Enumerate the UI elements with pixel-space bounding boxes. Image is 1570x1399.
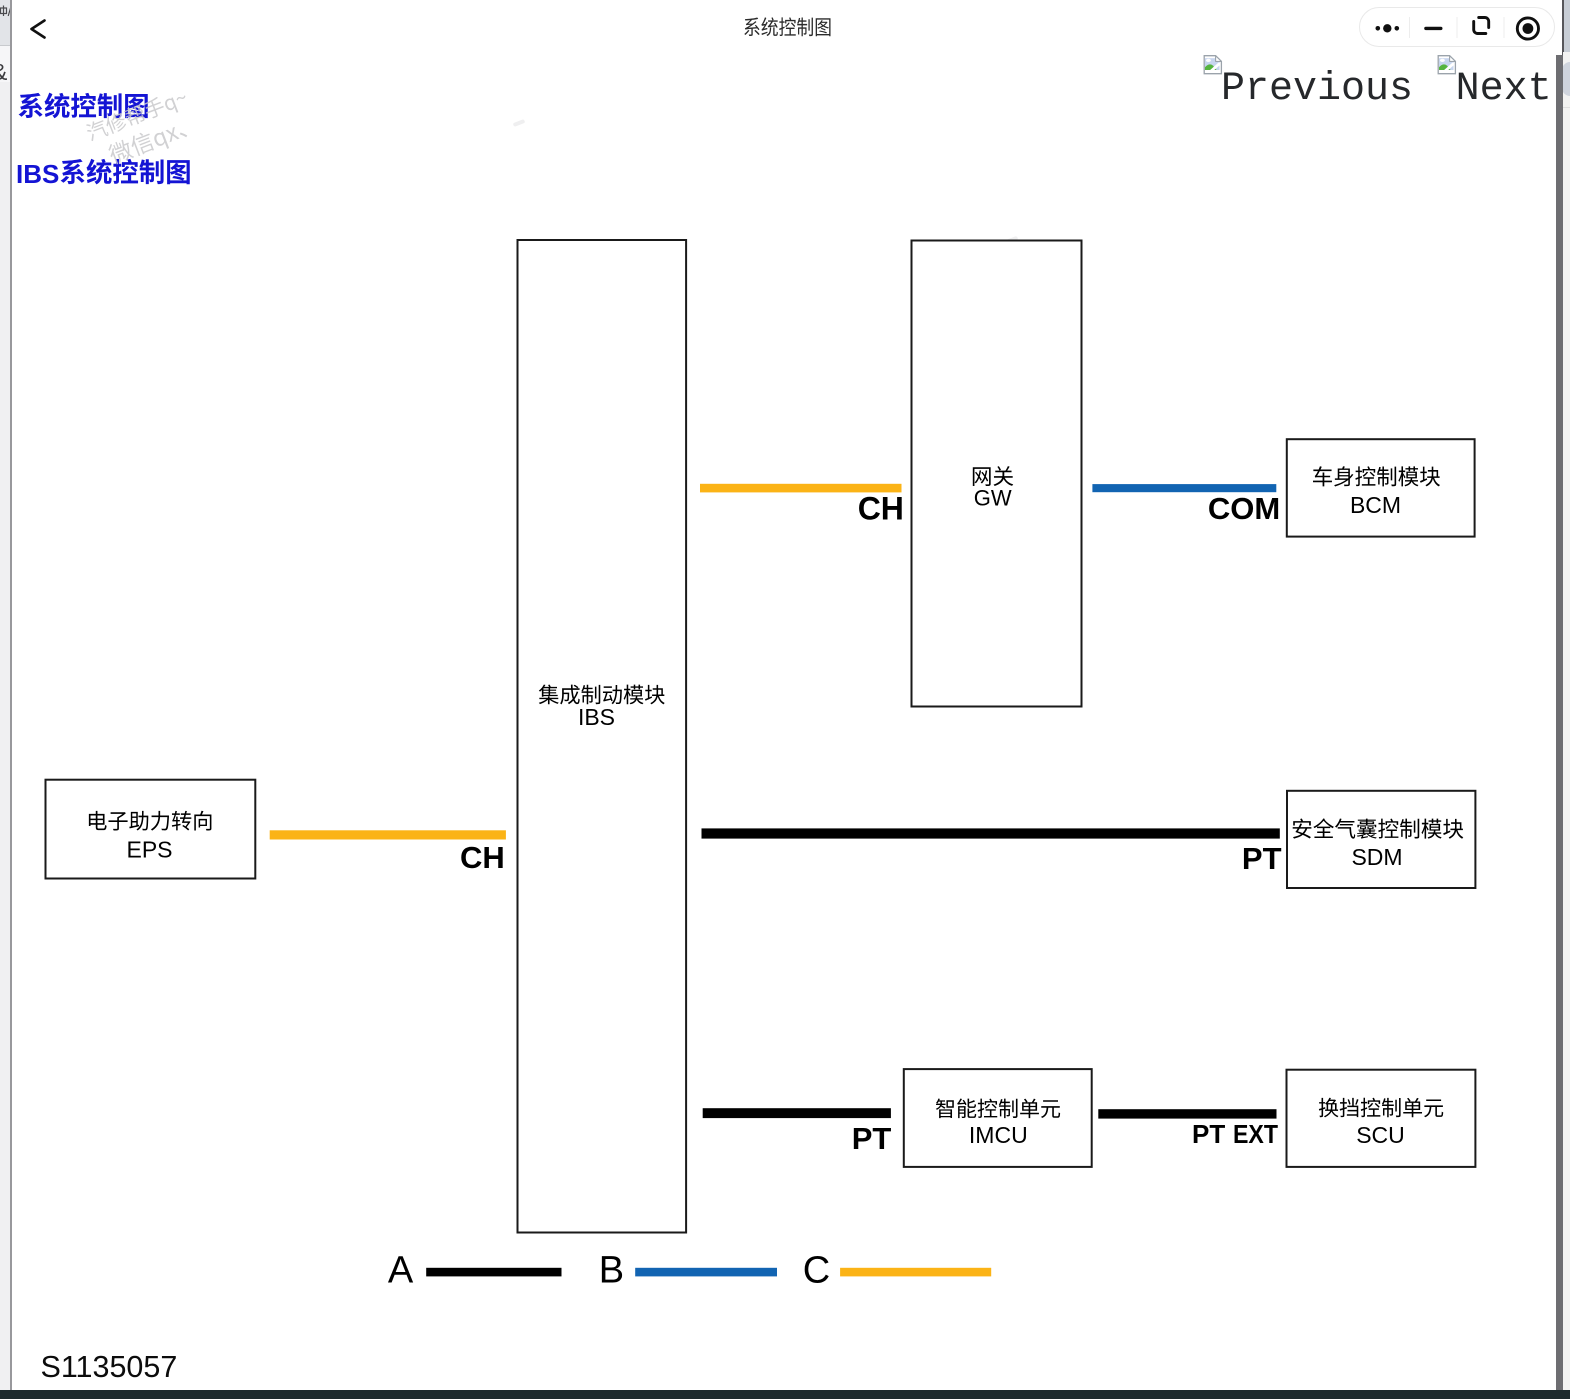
svg-text:BCM: BCM [1350, 492, 1401, 518]
svg-text:PT: PT [1242, 841, 1282, 876]
svg-text:IBS: IBS [578, 704, 615, 730]
svg-text:COM: COM [1208, 491, 1280, 526]
svg-text:SDM: SDM [1351, 844, 1402, 870]
svg-text:A: A [388, 1249, 414, 1291]
svg-text:CH: CH [858, 491, 904, 527]
svg-text:S1135057: S1135057 [41, 1350, 178, 1384]
svg-text:CH: CH [460, 840, 505, 875]
svg-text:SCU: SCU [1356, 1122, 1405, 1148]
svg-text:B: B [599, 1249, 624, 1291]
svg-text:IMCU: IMCU [969, 1122, 1028, 1148]
svg-text:C: C [803, 1249, 830, 1291]
svg-text:PT: PT [1192, 1119, 1225, 1149]
svg-text:EPS: EPS [126, 836, 172, 862]
svg-text:GW: GW [974, 486, 1012, 511]
svg-text:PT: PT [852, 1121, 892, 1156]
svg-text:EXT: EXT [1233, 1119, 1278, 1149]
